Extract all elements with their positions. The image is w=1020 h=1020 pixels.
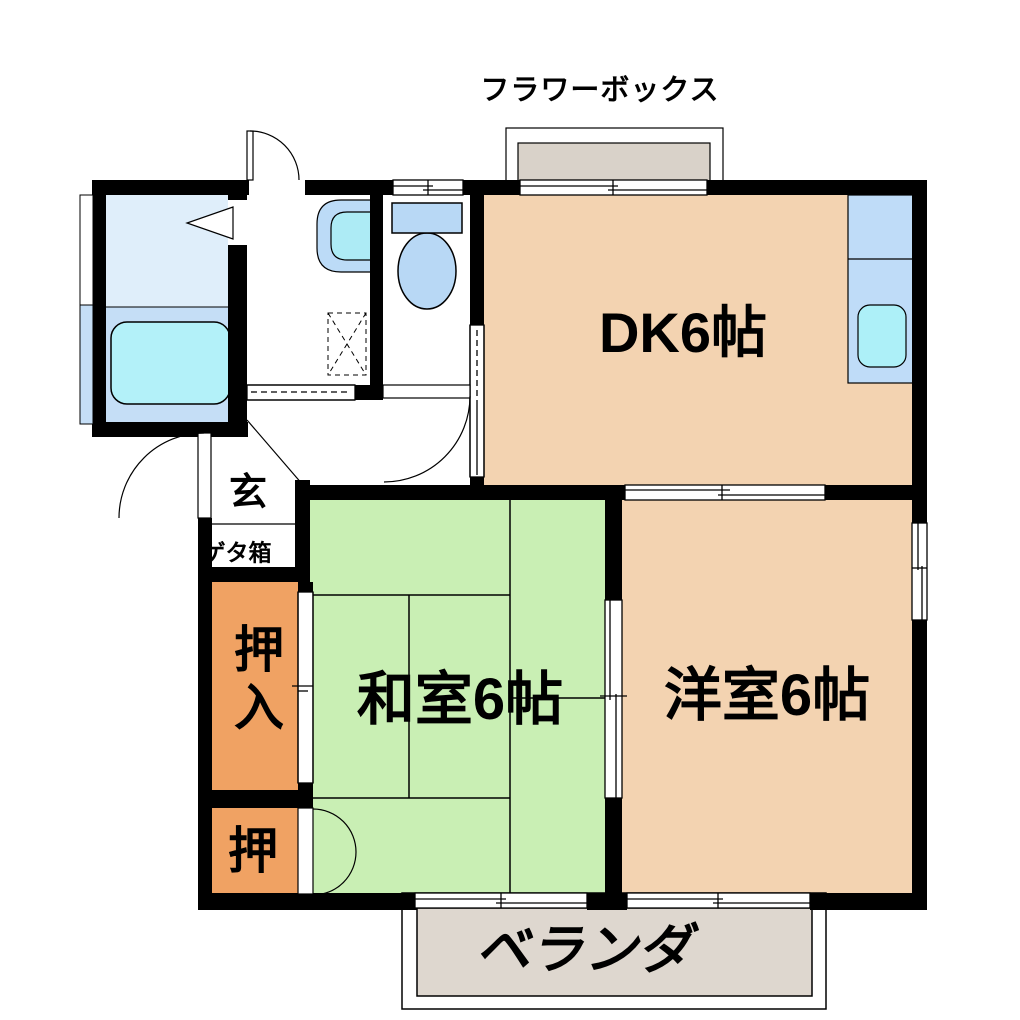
window-dk: [520, 180, 707, 195]
bathtub-icon: [111, 322, 230, 404]
kitchen-sink-icon: [858, 305, 906, 367]
window-toilet: [393, 180, 463, 195]
bathroom-floor: [104, 192, 230, 307]
slider-dk-youshitsu: [625, 485, 825, 500]
toilet-icon: [392, 203, 462, 309]
genkan-label: 玄: [229, 474, 267, 512]
room-washitsu-label: 和室6帖: [357, 671, 563, 729]
closet-oshi-label: 押: [228, 826, 278, 876]
room-youshitsu-label: 洋室6帖: [664, 667, 870, 725]
veranda-label: ベランダ: [474, 923, 701, 977]
washing-machine-pan-icon: [328, 313, 366, 375]
window-youshitsu-veranda: [627, 893, 810, 908]
slider-washroom: [247, 385, 355, 400]
flower-box: [506, 128, 723, 182]
washroom-door: [247, 131, 299, 180]
getabako-label: ゲタ箱: [203, 542, 272, 565]
flower-box-label: フラワーボックス: [480, 77, 719, 106]
entrance-door: [119, 433, 211, 518]
closet-oshiire-label: 押入: [230, 623, 280, 739]
window-youshitsu-right: [912, 523, 927, 620]
window-washitsu-veranda: [415, 893, 587, 908]
kitchen-counter: [848, 195, 913, 383]
floor-plan-drawing: [0, 0, 1020, 1020]
room-dk-label: DK6帖: [599, 305, 767, 361]
window-bath-left: [80, 195, 93, 424]
floor-plan: フラワーボックス DK6帖 和室6帖 洋室6帖 押入 押 玄 ゲタ箱 ベランダ: [0, 0, 1020, 1020]
toilet-door: [383, 385, 470, 482]
washbasin-icon: [317, 200, 372, 272]
slider-hall-dk: [470, 325, 484, 477]
